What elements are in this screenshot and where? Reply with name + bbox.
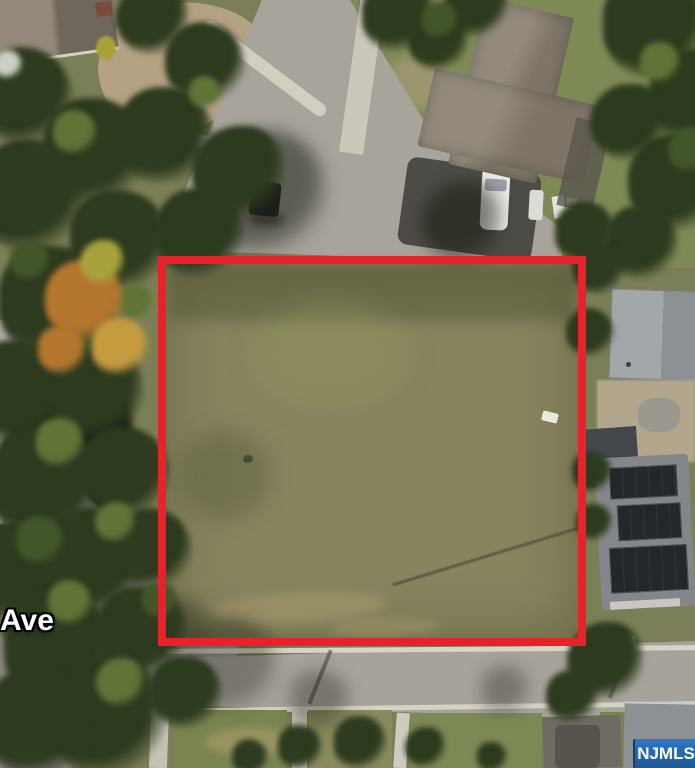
mls-watermark: NJMLS xyxy=(633,739,695,768)
tree-canopy xyxy=(150,656,222,728)
tree-canopy xyxy=(334,716,386,768)
tree-canopy xyxy=(232,739,268,768)
tree-canopy xyxy=(53,110,97,154)
mls-watermark-text: NJMLS xyxy=(637,744,695,764)
property-boundary xyxy=(158,256,586,646)
tree-canopy xyxy=(48,580,92,624)
tree-canopy xyxy=(405,727,445,767)
autumn-tree-canopy xyxy=(92,318,148,374)
tree-canopy xyxy=(546,670,598,722)
autumn-tree-canopy xyxy=(38,326,86,374)
street-label: Ave xyxy=(0,604,54,638)
tree-canopy xyxy=(16,516,64,564)
tree-canopy xyxy=(278,725,322,768)
tree-canopy xyxy=(95,502,135,542)
tree-shadow xyxy=(481,666,529,714)
tree-canopy xyxy=(189,76,221,108)
tree-shadow xyxy=(422,182,502,262)
tree-canopy xyxy=(96,658,144,706)
aerial-photo: Ave NJMLS xyxy=(0,0,695,768)
autumn-tree-canopy xyxy=(80,240,124,284)
tree-canopy xyxy=(477,742,507,768)
